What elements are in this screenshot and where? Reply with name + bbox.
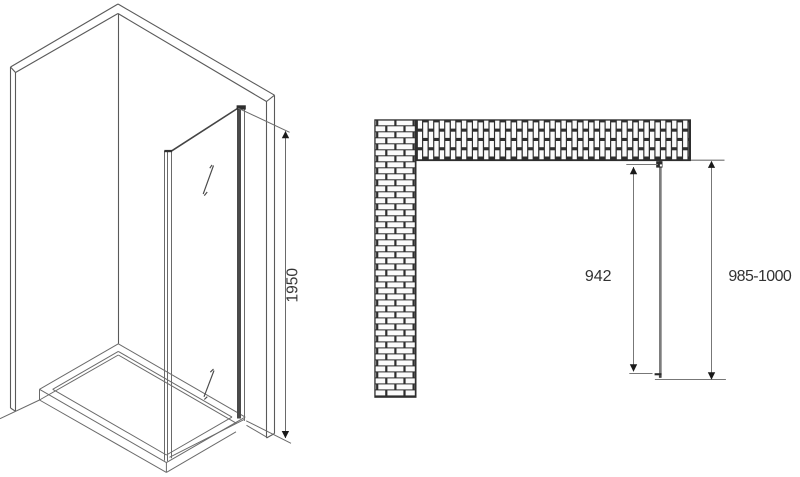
svg-text:942: 942 [585, 268, 612, 285]
svg-text:1950: 1950 [285, 268, 302, 303]
svg-text:985-1000: 985-1000 [728, 268, 792, 285]
